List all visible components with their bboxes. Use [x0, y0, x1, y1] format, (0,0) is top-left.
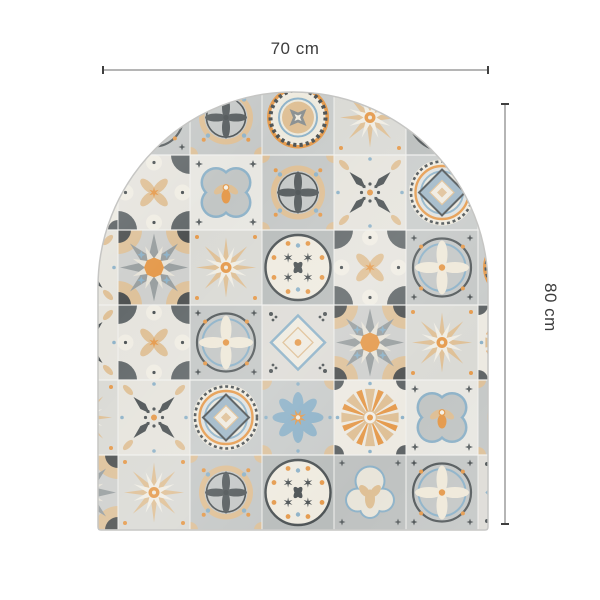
height-dimension-bottom-tick: [501, 523, 509, 525]
height-dimension-label: 80 cm: [540, 283, 560, 332]
height-dimension-line: [504, 104, 506, 525]
product-dimension-diagram: 70 cm 80 cm: [0, 0, 600, 600]
width-dimension-line: [103, 69, 488, 71]
tile-mat-image: [0, 0, 600, 600]
width-dimension-label: 70 cm: [195, 39, 395, 59]
width-dimension-left-tick: [102, 66, 104, 74]
height-dimension-top-tick: [501, 103, 509, 105]
width-dimension-right-tick: [487, 66, 489, 74]
